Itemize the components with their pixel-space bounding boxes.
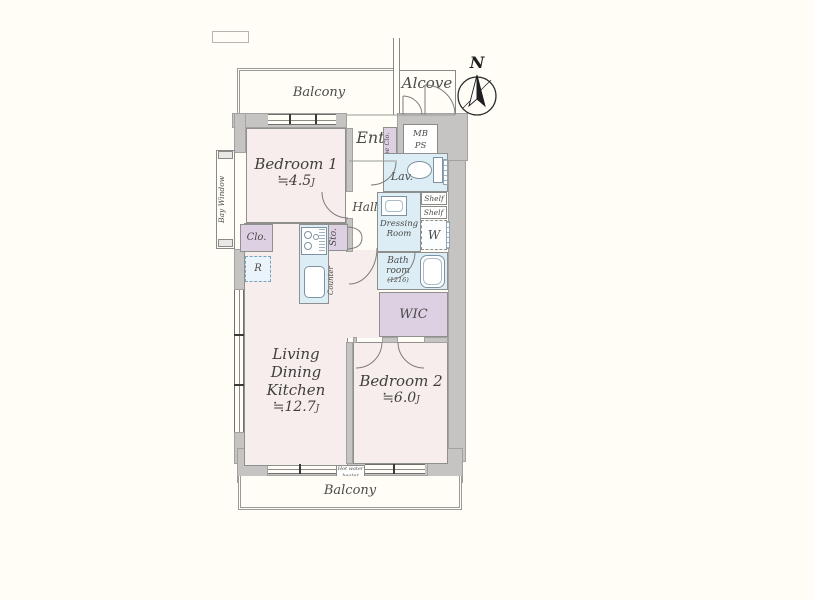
shelf: Shelf bbox=[420, 206, 447, 219]
bedroom2-label: Bedroom 2 ≒6.0J bbox=[356, 372, 446, 406]
bedroom1-label: Bedroom 1 ≒4.5J bbox=[251, 155, 341, 189]
shelf: Shelf bbox=[421, 192, 447, 205]
ldk-size: ≒12.7 bbox=[273, 399, 316, 415]
balcony-top: Balcony bbox=[237, 68, 398, 114]
compass-icon: N bbox=[458, 53, 496, 115]
bedroom1-size: ≒4.5 bbox=[277, 173, 311, 189]
bath-label-1: Bath bbox=[377, 256, 419, 266]
bathroom-label: Bath room (1216) bbox=[377, 256, 419, 290]
kitchen-sink-icon bbox=[304, 266, 325, 298]
bath-size-label: (1216) bbox=[377, 277, 419, 284]
shelf-label: Shelf bbox=[421, 207, 446, 218]
wall-segment bbox=[424, 337, 448, 343]
window bbox=[268, 114, 336, 125]
wall-stub-outline bbox=[212, 31, 249, 43]
ldk-label: Living Dining Kitchen ≒12.7J bbox=[246, 345, 346, 415]
dressing-label-2: Room bbox=[377, 229, 421, 239]
alcove-label: Alcove bbox=[399, 74, 455, 92]
bedroom2-name: Bedroom 2 bbox=[356, 372, 446, 390]
bay-window-cap bbox=[218, 151, 233, 159]
washer-space: W bbox=[421, 220, 447, 250]
wall-segment bbox=[346, 342, 353, 464]
window bbox=[365, 464, 425, 474]
lavatory-label: Lav. bbox=[386, 170, 418, 188]
wall-segment bbox=[448, 160, 466, 462]
refrigerator-label: R bbox=[246, 257, 270, 281]
counter-label: Counter bbox=[327, 258, 339, 304]
dressing-room-label: Dressing Room bbox=[377, 219, 421, 249]
balcony-top-label: Balcony bbox=[240, 71, 398, 115]
bedroom2-unit: J bbox=[416, 395, 420, 405]
alcove: Alcove bbox=[399, 70, 456, 114]
burner-icon bbox=[304, 231, 312, 239]
toilet-tank-icon bbox=[433, 157, 443, 183]
window bbox=[234, 290, 244, 432]
shelf-label: Shelf bbox=[422, 193, 446, 204]
bedroom2-size: ≒6.0 bbox=[382, 390, 416, 406]
shelf-icon bbox=[443, 159, 448, 185]
water-heater-label-1: Hot water bbox=[337, 466, 364, 473]
wall-segment bbox=[382, 337, 398, 343]
stove-icon bbox=[301, 227, 327, 255]
burner-icon bbox=[304, 242, 312, 250]
storage-label: Sto. bbox=[329, 225, 347, 250]
ps-label: PS bbox=[413, 141, 428, 152]
washbasin-icon bbox=[381, 196, 407, 216]
bedroom1-name: Bedroom 1 bbox=[251, 155, 341, 173]
closet: Clo. bbox=[240, 224, 273, 252]
bay-window: Bay Window bbox=[216, 150, 235, 249]
refrigerator-space: R bbox=[245, 256, 271, 282]
grill-hatch bbox=[319, 229, 325, 253]
room-passage bbox=[346, 250, 379, 338]
closet-label: Clo. bbox=[241, 225, 272, 251]
shelf-icon bbox=[446, 221, 450, 249]
ldk-name-1: Living Dining bbox=[246, 345, 346, 381]
ldk-unit: J bbox=[316, 404, 320, 414]
compass-north-label: N bbox=[469, 53, 486, 72]
storage: Sto. bbox=[328, 224, 348, 251]
bedroom1-unit: J bbox=[311, 178, 315, 188]
washer-label: W bbox=[422, 221, 446, 249]
room-wic: WIC bbox=[379, 292, 448, 337]
wall-segment bbox=[234, 113, 246, 153]
balcony-bottom-label: Balcony bbox=[241, 476, 459, 506]
balcony-bottom: Balcony bbox=[238, 476, 462, 510]
ldk-name-2: Kitchen bbox=[246, 381, 346, 399]
dressing-label-1: Dressing bbox=[377, 219, 421, 229]
wall-segment bbox=[353, 337, 357, 343]
bay-window-cap bbox=[218, 239, 233, 247]
mb-label: MB bbox=[413, 129, 428, 140]
counter-label-box: Counter bbox=[327, 258, 339, 304]
bay-window-label: Bay Window bbox=[217, 151, 234, 248]
floor-plan: Balcony Alcove MB PS Hot water heater Ba… bbox=[0, 0, 814, 600]
bathtub-icon bbox=[420, 255, 445, 288]
wic-label: WIC bbox=[380, 293, 447, 336]
